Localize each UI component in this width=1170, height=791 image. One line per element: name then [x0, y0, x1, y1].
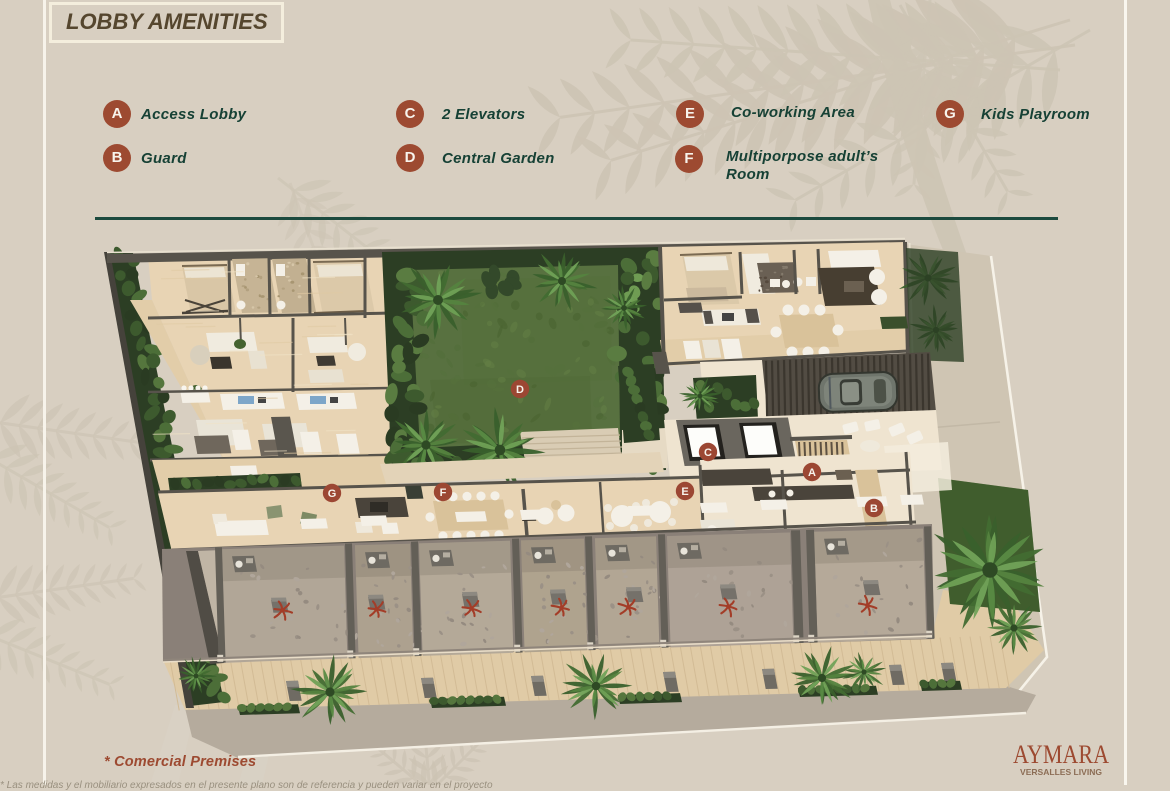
svg-text:E: E: [681, 486, 688, 498]
svg-text:G: G: [328, 488, 337, 500]
svg-text:C: C: [704, 447, 712, 459]
svg-text:A: A: [808, 467, 816, 479]
svg-text:D: D: [516, 384, 524, 396]
svg-text:AYMARA: AYMARA: [1013, 740, 1109, 769]
svg-text:F: F: [440, 487, 447, 499]
svg-text:B: B: [870, 503, 878, 515]
svg-text:VERSALLES LIVING: VERSALLES LIVING: [1020, 767, 1102, 777]
